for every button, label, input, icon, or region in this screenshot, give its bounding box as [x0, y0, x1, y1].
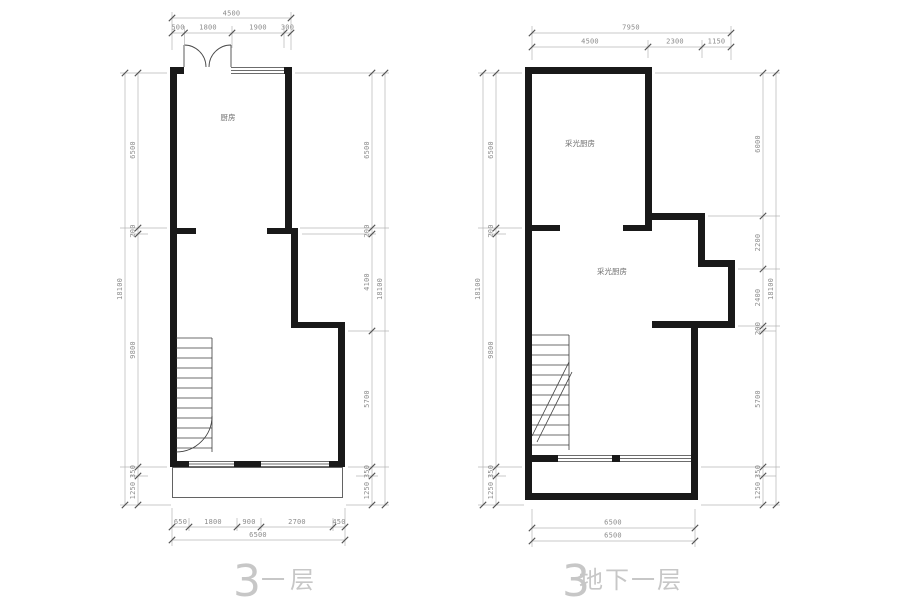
dim-text: 4100	[363, 273, 371, 291]
wall	[691, 321, 698, 500]
dim-text: 350	[129, 465, 137, 478]
dim-text: 1800	[204, 518, 222, 526]
window	[620, 456, 691, 462]
wall	[645, 67, 652, 231]
dim-text: 6500	[487, 141, 495, 159]
dim-text: 2200	[754, 234, 762, 252]
dim-text: 4500	[581, 38, 599, 46]
window	[261, 462, 329, 467]
dim-text: 5700	[363, 390, 371, 408]
dim-text: 9800	[129, 341, 137, 359]
dim-left-plan-left: 6500 200 9800 350 1250 18100	[116, 70, 171, 508]
double-door	[184, 45, 231, 67]
wall	[612, 455, 620, 462]
dim-text: 6500	[249, 531, 267, 539]
dim-right-plan-bottom: 6500 6500	[529, 509, 698, 547]
dim-text: 1900	[249, 24, 267, 32]
stairs-break-line	[532, 362, 572, 442]
caption-number: 3	[233, 556, 261, 600]
dim-text: 1250	[487, 482, 495, 500]
dim-text: 1250	[363, 482, 371, 500]
wall	[170, 67, 177, 467]
wall	[525, 67, 652, 74]
dim-text: 1800	[199, 24, 217, 32]
caption-text: 一层	[261, 566, 319, 594]
dim-text: 18100	[474, 278, 482, 300]
floor-plan-level1	[170, 45, 345, 498]
dim-text: 6500	[604, 532, 622, 540]
dim-text: 2700	[288, 518, 306, 526]
room-label-basement-upper: 采光厨房	[565, 138, 595, 148]
stairs	[532, 335, 569, 450]
dim-text: 9800	[487, 341, 495, 359]
dim-text: 200	[363, 224, 371, 237]
wall	[291, 228, 298, 328]
dim-text: 350	[363, 465, 371, 478]
dim-right-plan-left: 6500 200 9800 350 1250 18100	[474, 70, 524, 508]
wall	[170, 228, 196, 234]
dim-text: 200	[487, 224, 495, 237]
room-label-level1: 厨房	[221, 112, 236, 122]
dim-text: 650	[174, 518, 187, 526]
dim-text: 6000	[754, 135, 762, 153]
dim-left-plan-top: 4500 500 1800 1900 300	[169, 10, 294, 51]
wall	[234, 461, 261, 467]
dim-right-plan-top: 7950 4500 2300 1150	[529, 24, 734, 61]
dim-right-plan-right: 6000 2200 2400 200 5700 350 1250 18100	[655, 70, 780, 508]
wall	[525, 455, 558, 462]
dim-text: 6500	[363, 141, 371, 159]
dim-text: 6500	[129, 141, 137, 159]
floor-plan-basement	[525, 67, 735, 500]
dim-text: 350	[487, 465, 495, 478]
dim-text: 2300	[666, 38, 684, 46]
dim-text: 1250	[754, 482, 762, 500]
caption-level1: 3 一层	[233, 556, 319, 600]
wall	[623, 225, 652, 231]
dim-text: 7950	[622, 24, 640, 32]
wall	[291, 322, 345, 328]
wall	[698, 213, 705, 267]
caption-basement: 3 地下一层	[562, 556, 683, 600]
dim-text: 5700	[754, 390, 762, 408]
dim-text: 6500	[604, 519, 622, 527]
wall	[525, 67, 532, 500]
window	[558, 456, 612, 462]
wall	[525, 225, 560, 231]
dim-text: 18100	[767, 278, 775, 300]
dim-text: 200	[754, 322, 762, 335]
wall	[285, 67, 292, 234]
dim-left-plan-bottom: 650 1800 900 2700 450 6500	[169, 508, 348, 546]
dim-text: 2400	[754, 289, 762, 307]
wall	[645, 213, 705, 220]
terrace	[173, 468, 343, 498]
dim-text: 350	[754, 465, 762, 478]
dim-text: 1250	[129, 482, 137, 500]
plan-drawing: 4500 500 1800 1900 300 6500 200 9800 350…	[0, 0, 900, 600]
room-label-basement-lower: 采光厨房	[597, 266, 627, 276]
dim-text: 1150	[708, 38, 726, 46]
window	[231, 68, 284, 74]
floor-plan-sheet: 4500 500 1800 1900 300 6500 200 9800 350…	[0, 0, 900, 600]
dim-text: 450	[332, 518, 345, 526]
wall	[338, 322, 345, 467]
dim-text: 200	[129, 224, 137, 237]
dim-text: 4500	[223, 10, 241, 18]
caption-text: 地下一层	[579, 566, 683, 594]
window	[189, 462, 234, 467]
dim-text: 18100	[116, 278, 124, 300]
dim-text: 18100	[376, 278, 384, 300]
wall	[728, 260, 735, 328]
dim-text: 900	[242, 518, 255, 526]
door-swing-arc	[176, 416, 212, 452]
wall	[329, 461, 345, 467]
wall	[525, 493, 698, 500]
dim-text: 500	[171, 24, 184, 32]
wall	[170, 461, 189, 467]
dim-text: 300	[281, 24, 294, 32]
